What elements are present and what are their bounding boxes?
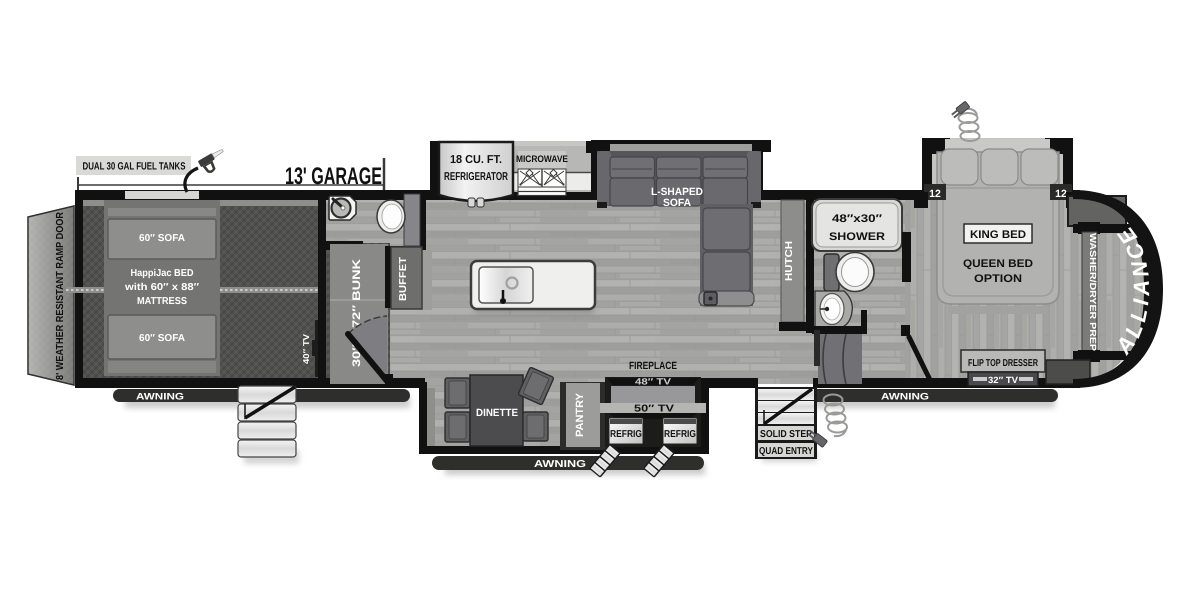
svg-text:SOFA: SOFA xyxy=(663,197,691,209)
svg-text:AWNING: AWNING xyxy=(881,392,929,403)
svg-text:OPTION: OPTION xyxy=(974,273,1022,285)
svg-text:with 60″ x 88″: with 60″ x 88″ xyxy=(124,282,199,293)
svg-text:13' GARAGE: 13' GARAGE xyxy=(285,163,382,190)
svg-text:12: 12 xyxy=(929,188,941,200)
svg-text:REFRIG: REFRIG xyxy=(664,429,696,440)
svg-text:18 CU. FT.: 18 CU. FT. xyxy=(450,154,502,166)
svg-text:32″ TV: 32″ TV xyxy=(988,375,1018,385)
svg-text:48″ TV: 48″ TV xyxy=(635,377,671,387)
svg-text:48″x30″: 48″x30″ xyxy=(832,213,883,225)
svg-text:50″ TV: 50″ TV xyxy=(634,404,674,415)
svg-text:REFRIGERATOR: REFRIGERATOR xyxy=(444,171,508,183)
svg-text:DINETTE: DINETTE xyxy=(476,407,518,419)
svg-text:PANTRY: PANTRY xyxy=(574,393,586,437)
svg-text:FIREPLACE: FIREPLACE xyxy=(629,360,677,372)
svg-text:AWNING: AWNING xyxy=(136,392,184,403)
svg-text:40″ TV: 40″ TV xyxy=(301,334,311,364)
svg-text:60″ SOFA: 60″ SOFA xyxy=(139,233,185,244)
svg-text:REFRIG: REFRIG xyxy=(610,429,642,440)
svg-text:QUAD ENTRY: QUAD ENTRY xyxy=(759,446,813,457)
svg-text:FLIP TOP DRESSER: FLIP TOP DRESSER xyxy=(968,358,1039,369)
svg-text:HUTCH: HUTCH xyxy=(784,241,795,281)
svg-text:SHOWER: SHOWER xyxy=(829,231,885,243)
svg-text:WASHER/DRYER PREP: WASHER/DRYER PREP xyxy=(1088,233,1098,351)
svg-text:8' WEATHER RESISTANT RAMP DOOR: 8' WEATHER RESISTANT RAMP DOOR xyxy=(55,211,66,380)
svg-text:DUAL 30 GAL FUEL TANKS: DUAL 30 GAL FUEL TANKS xyxy=(83,161,186,173)
svg-text:MICROWAVE: MICROWAVE xyxy=(516,154,568,165)
svg-text:AWNING: AWNING xyxy=(534,459,586,470)
svg-text:60″ SOFA: 60″ SOFA xyxy=(139,333,185,344)
svg-text:HappiJac BED: HappiJac BED xyxy=(131,268,194,279)
svg-text:KING BED: KING BED xyxy=(970,229,1026,241)
svg-text:12: 12 xyxy=(1055,188,1067,200)
svg-text:QUEEN BED: QUEEN BED xyxy=(963,258,1033,270)
svg-text:MATTRESS: MATTRESS xyxy=(137,296,187,307)
svg-text:BUFFET: BUFFET xyxy=(398,257,409,301)
svg-text:SOLID STEP: SOLID STEP xyxy=(760,429,812,440)
